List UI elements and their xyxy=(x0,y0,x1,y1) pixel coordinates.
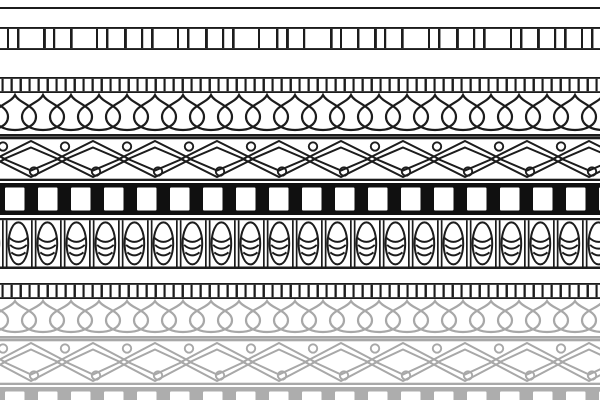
petal-row-faded-pattern xyxy=(0,299,600,339)
block-row-black-pattern xyxy=(0,183,600,215)
top-rule xyxy=(0,7,600,9)
petal-row-faded xyxy=(0,299,600,339)
dentil-lower xyxy=(0,283,600,299)
trellis-faded-pattern xyxy=(0,339,600,385)
block-row-black xyxy=(0,183,600,215)
block-row-faded-pattern xyxy=(0,387,600,400)
petal-row-upper xyxy=(0,93,600,137)
top-rule-pattern xyxy=(0,7,600,9)
trellis-upper-pattern xyxy=(0,137,600,181)
dentil-upper-pattern xyxy=(0,77,600,93)
dentil-upper xyxy=(0,77,600,93)
ornamental-border-sampler xyxy=(0,0,600,400)
trellis-upper xyxy=(0,137,600,181)
tally-rail xyxy=(0,27,600,50)
petal-row-upper-pattern xyxy=(0,93,600,137)
tally-rail-pattern xyxy=(0,27,600,50)
husk-row-pattern xyxy=(0,218,600,269)
husk-row xyxy=(0,218,600,269)
block-row-faded xyxy=(0,387,600,400)
dentil-lower-pattern xyxy=(0,283,600,299)
trellis-faded xyxy=(0,339,600,385)
